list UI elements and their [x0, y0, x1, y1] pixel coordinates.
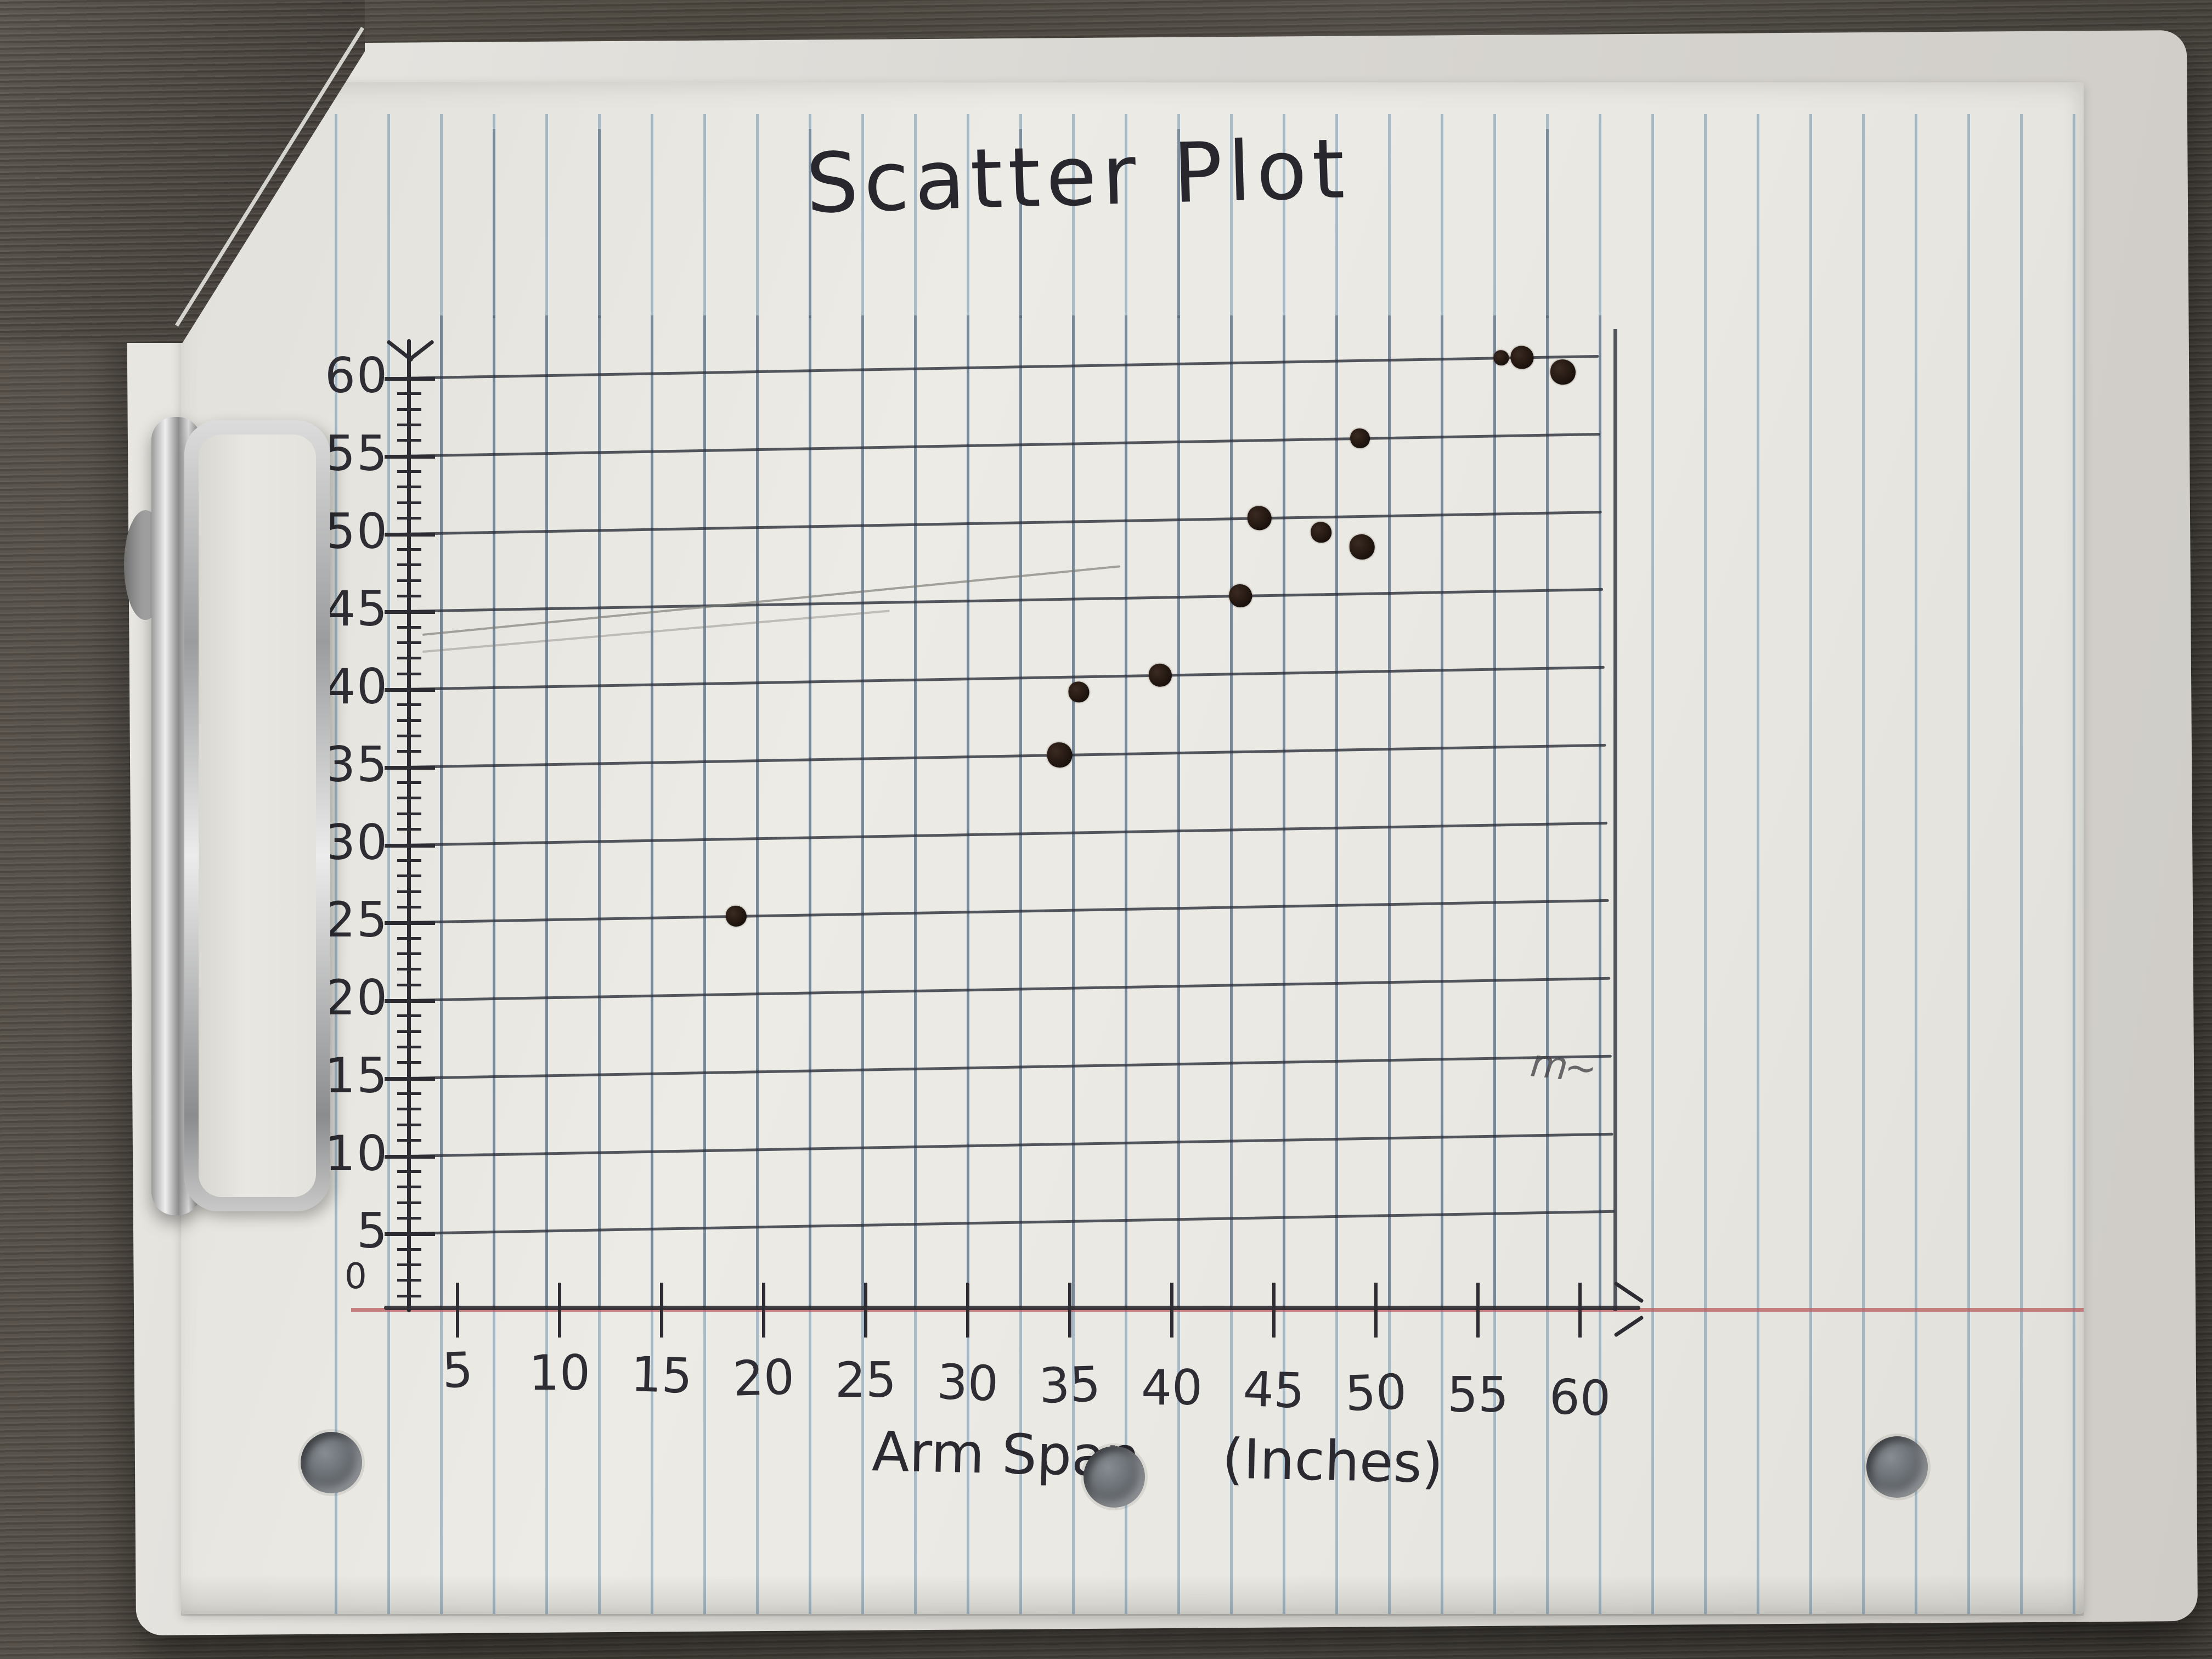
grid-horizontal-line — [401, 822, 1607, 847]
y-minor-tick — [397, 1186, 421, 1188]
y-minor-tick — [397, 517, 421, 520]
data-dot — [1550, 359, 1576, 385]
y-minor-tick — [397, 952, 421, 955]
ruled-line — [1967, 114, 1970, 1614]
data-dot — [1047, 742, 1073, 768]
y-minor-tick — [397, 657, 421, 659]
y-minor-tick — [397, 486, 421, 488]
x-major-tick — [1272, 1283, 1276, 1338]
y-minor-tick — [397, 781, 421, 784]
y-minor-tick — [397, 1139, 421, 1142]
data-dot — [1493, 350, 1509, 366]
y-minor-tick — [397, 1295, 421, 1297]
y-major-tick — [385, 610, 435, 614]
y-tick-label: 5 — [290, 1203, 388, 1259]
grid-horizontal-line — [408, 1210, 1615, 1235]
clipboard-clip-wire-loop — [184, 420, 330, 1211]
ruled-line — [1757, 114, 1759, 1614]
x-axis-line — [384, 1306, 1640, 1310]
x-tick-label: 15 — [619, 1345, 704, 1404]
y-minor-tick — [397, 1061, 421, 1064]
y-minor-tick — [397, 1279, 421, 1282]
data-dot — [1311, 522, 1332, 543]
y-minor-tick — [397, 719, 421, 722]
punch-hole-middle — [1084, 1446, 1145, 1508]
y-minor-tick — [397, 424, 421, 426]
x-tick-label: 5 — [415, 1340, 500, 1400]
x-major-tick — [660, 1283, 663, 1338]
y-minor-tick — [397, 859, 421, 862]
ruled-line — [1651, 114, 1654, 1614]
x-tick-label: 25 — [825, 1352, 907, 1408]
y-minor-tick — [397, 1170, 421, 1173]
ruled-line — [1809, 114, 1812, 1614]
y-minor-tick — [397, 1092, 421, 1095]
origin-zero-label: 0 — [345, 1256, 383, 1297]
y-minor-tick — [397, 1217, 421, 1220]
y-minor-tick — [397, 906, 421, 909]
data-dot — [1229, 584, 1252, 608]
pencil-scribble: m~ — [1528, 1040, 1596, 1092]
grid-horizontal-line — [397, 588, 1604, 613]
y-minor-tick — [397, 797, 421, 799]
photo-of-clipboard-scatter-plot: m~ 6055504540353025201510551015202530354… — [0, 0, 2212, 1659]
x-tick-label: 40 — [1131, 1359, 1213, 1416]
y-major-tick — [385, 377, 435, 381]
x-major-tick — [558, 1283, 561, 1338]
grid-horizontal-line — [398, 666, 1605, 691]
y-minor-tick — [397, 1014, 421, 1017]
ruled-line — [2020, 114, 2023, 1614]
data-dot — [1247, 506, 1272, 531]
y-major-tick — [385, 455, 435, 459]
ruled-line — [2073, 114, 2075, 1614]
x-axis-title-inches: (Inches) — [1222, 1426, 1444, 1495]
grid-horizontal-line — [400, 744, 1606, 769]
grid-horizontal-line — [394, 433, 1600, 458]
y-minor-tick — [397, 703, 421, 706]
y-minor-tick — [397, 392, 421, 395]
grid-horizontal-line — [405, 1055, 1612, 1080]
y-minor-tick — [397, 439, 421, 442]
y-minor-tick — [397, 626, 421, 629]
x-tick-label: 60 — [1538, 1368, 1622, 1427]
y-minor-tick — [397, 812, 421, 815]
data-dot — [726, 906, 747, 927]
paper-bottom-shadow — [181, 1575, 2084, 1616]
y-major-tick — [385, 921, 435, 925]
x-tick-label: 30 — [926, 1353, 1010, 1412]
x-axis-title: Arm Span (Inches) — [855, 1419, 1460, 1496]
y-major-tick — [385, 1155, 435, 1159]
data-dot — [1510, 346, 1534, 369]
x-major-tick — [966, 1283, 969, 1338]
data-dot — [1068, 681, 1090, 703]
y-minor-tick — [397, 548, 421, 551]
y-minor-tick — [397, 735, 421, 737]
x-tick-label: 50 — [1334, 1363, 1418, 1422]
data-dot — [1149, 663, 1172, 687]
x-tick-label: 45 — [1232, 1360, 1316, 1419]
y-major-tick — [385, 766, 435, 770]
x-major-tick — [456, 1283, 459, 1338]
y-major-tick — [385, 1232, 435, 1236]
y-minor-tick — [397, 750, 421, 753]
y-minor-tick — [397, 470, 421, 473]
y-minor-tick — [397, 968, 421, 970]
data-dot — [1350, 428, 1370, 449]
grid-horizontal-line — [403, 899, 1609, 924]
y-major-tick — [385, 1077, 435, 1081]
y-minor-tick — [397, 563, 421, 566]
x-major-tick — [762, 1283, 765, 1338]
y-minor-tick — [397, 501, 421, 504]
ruled-line — [1915, 114, 1917, 1614]
y-minor-tick — [397, 890, 421, 893]
ruled-line — [1862, 114, 1865, 1614]
x-major-tick — [1476, 1283, 1480, 1338]
y-major-tick — [385, 999, 435, 1003]
data-dot — [1349, 534, 1375, 560]
y-minor-tick — [397, 1263, 421, 1266]
x-tick-label: 20 — [721, 1348, 806, 1407]
grid-horizontal-line — [404, 977, 1611, 1002]
ruled-line — [1704, 114, 1707, 1614]
x-major-tick — [864, 1283, 867, 1338]
y-minor-tick — [397, 579, 421, 582]
x-tick-label: 35 — [1028, 1355, 1112, 1414]
y-minor-tick — [397, 1201, 421, 1204]
y-minor-tick — [397, 1124, 421, 1126]
y-minor-tick — [397, 1248, 421, 1251]
y-minor-tick — [397, 874, 421, 877]
y-minor-tick — [397, 673, 421, 675]
grid-horizontal-line — [393, 355, 1599, 380]
y-minor-tick — [397, 641, 421, 644]
y-minor-tick — [397, 408, 421, 411]
punch-hole-right — [1866, 1436, 1928, 1498]
clip-loop-opening — [199, 435, 316, 1197]
y-minor-tick — [397, 1046, 421, 1048]
x-tick-label: 10 — [518, 1345, 601, 1401]
grid-horizontal-line — [396, 511, 1602, 535]
punch-hole-left — [301, 1432, 362, 1493]
x-major-tick — [1578, 1283, 1582, 1338]
y-major-tick — [385, 533, 435, 537]
x-major-tick — [1068, 1283, 1071, 1338]
y-major-tick — [385, 844, 435, 848]
x-tick-label: 55 — [1437, 1367, 1519, 1423]
y-major-tick — [385, 688, 435, 692]
grid-horizontal-line — [407, 1133, 1613, 1158]
y-minor-tick — [397, 937, 421, 940]
x-major-tick — [1170, 1283, 1173, 1338]
y-tick-label: 60 — [290, 347, 388, 404]
y-minor-tick — [397, 1030, 421, 1033]
chart-title: Scatter Plot — [789, 121, 1367, 232]
y-minor-tick — [397, 828, 421, 831]
y-minor-tick — [397, 984, 421, 986]
x-major-tick — [1374, 1283, 1378, 1338]
y-minor-tick — [397, 595, 421, 597]
y-minor-tick — [397, 1108, 421, 1110]
